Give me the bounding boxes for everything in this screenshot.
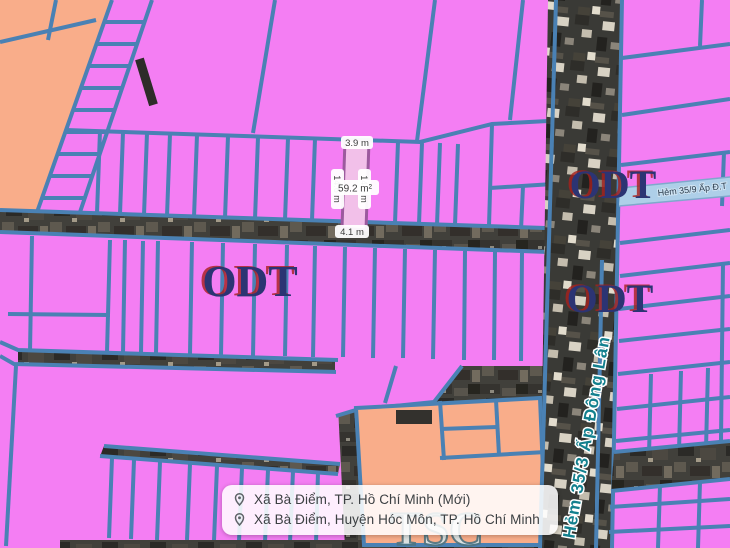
location-label-new: Xã Bà Điểm, TP. Hồ Chí Minh (Mới): [254, 492, 470, 507]
measure-width-top: 3.9 m: [341, 136, 373, 149]
zone-label-odt-main: ODT: [567, 276, 654, 321]
land-zoning-map-app: Hẻm 35/9 Ấp Đ.T TSC ODT ODT ODT ODT ODT …: [0, 0, 730, 548]
location-row-new[interactable]: Xã Bà Điểm, TP. Hồ Chí Minh (Mới): [232, 492, 546, 507]
measure-width-bottom: 4.1 m: [335, 225, 369, 238]
location-panel: Xã Bà Điểm, TP. Hồ Chí Minh (Mới) Xã Bà …: [222, 485, 558, 535]
road-bottom-strip: [60, 540, 345, 548]
location-row-old[interactable]: Xã Bà Điểm, Huyện Hóc Môn, TP. Hồ Chí Mi…: [232, 512, 546, 527]
satellite-notch: [396, 410, 432, 424]
measure-area: 59.2 m²: [331, 180, 379, 195]
svg-text:3.9 m: 3.9 m: [345, 138, 369, 149]
svg-text:59.2 m²: 59.2 m²: [338, 184, 373, 195]
zoning-map-canvas[interactable]: Hẻm 35/9 Ấp Đ.T TSC ODT ODT ODT ODT ODT …: [0, 0, 730, 548]
location-label-old: Xã Bà Điểm, Huyện Hóc Môn, TP. Hồ Chí Mi…: [254, 512, 540, 527]
location-pin-icon: [232, 492, 247, 507]
zone-label-odt-main: ODT: [202, 257, 297, 306]
zone-label-odt-main: ODT: [570, 162, 657, 207]
location-pin-icon: [232, 512, 247, 527]
svg-text:4.1 m: 4.1 m: [340, 227, 364, 238]
